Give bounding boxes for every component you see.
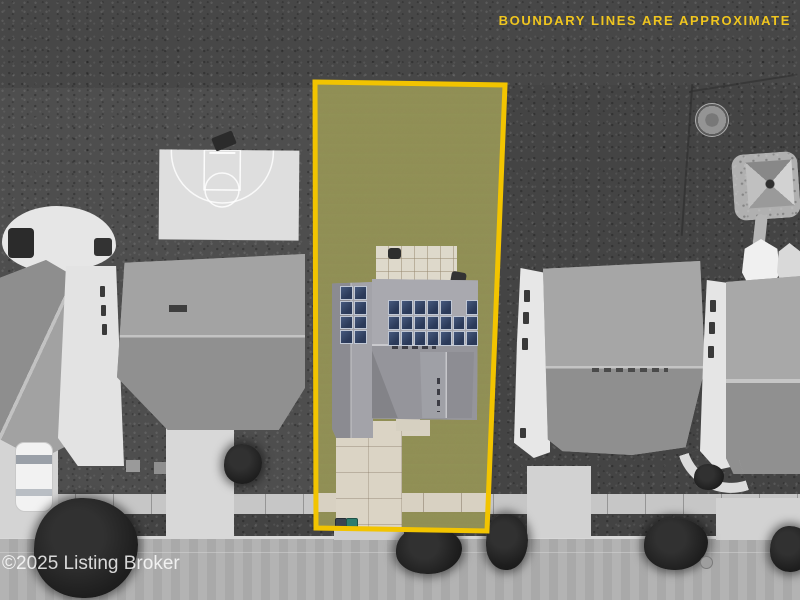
listing-photo: BOUNDARY LINES ARE APPROXIMATE ©2025 Lis… — [0, 0, 800, 600]
disclaimer-text: BOUNDARY LINES ARE APPROXIMATE — [499, 13, 791, 28]
watermark-text: ©2025 Listing Broker — [2, 553, 180, 575]
boundary-line — [0, 0, 800, 600]
